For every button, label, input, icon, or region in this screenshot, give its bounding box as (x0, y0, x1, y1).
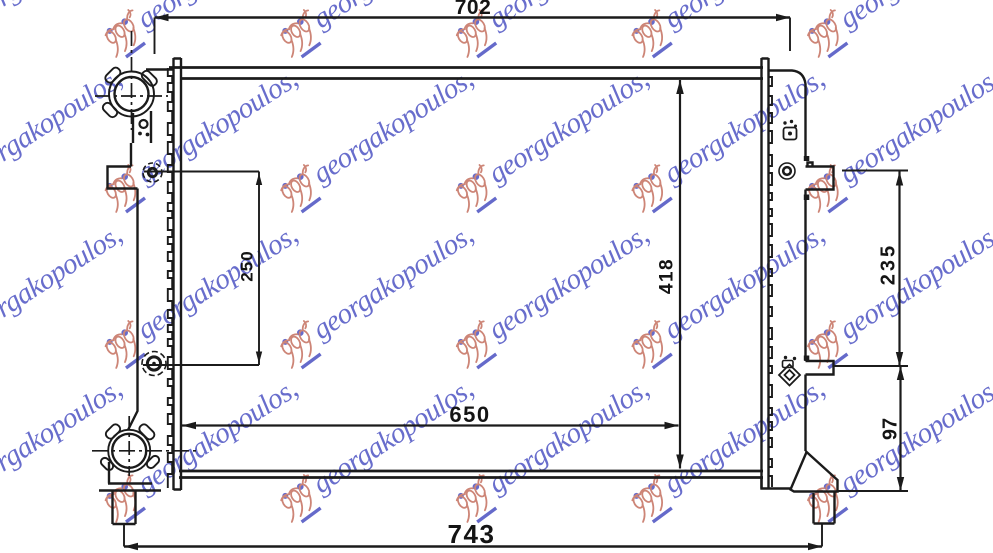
svg-text:97: 97 (880, 418, 902, 440)
svg-text:702: 702 (455, 0, 492, 19)
svg-text:650: 650 (449, 402, 490, 427)
svg-text:250: 250 (238, 250, 257, 281)
svg-text:235: 235 (878, 243, 900, 285)
svg-text:418: 418 (657, 258, 678, 294)
svg-text:743: 743 (448, 519, 496, 549)
